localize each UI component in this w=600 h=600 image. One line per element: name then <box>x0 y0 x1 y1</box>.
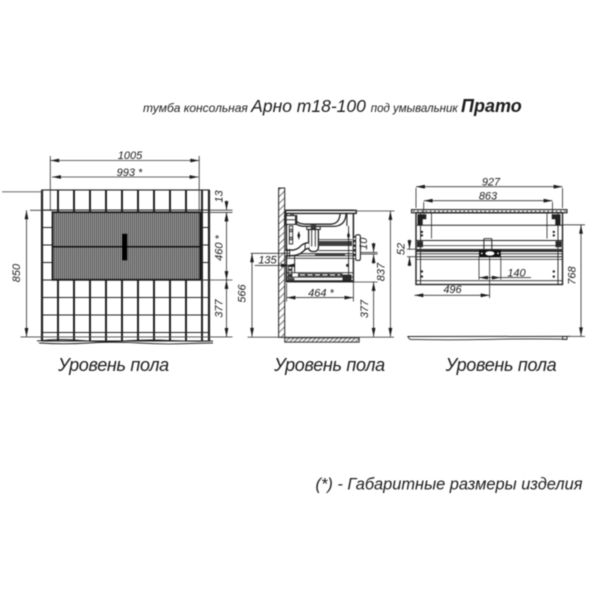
svg-text:464 *: 464 * <box>308 287 334 299</box>
svg-text:850: 850 <box>11 263 23 282</box>
svg-text:Уровень пола: Уровень пола <box>57 355 169 375</box>
svg-text:(*) - Габаритные размеры издел: (*) - Габаритные размеры изделия <box>315 476 582 494</box>
svg-text:460 *: 460 * <box>213 234 225 260</box>
svg-text:377: 377 <box>359 299 371 318</box>
svg-text:тумба консольная Арно т18-100: тумба консольная Арно т18-100 под умывал… <box>143 96 522 116</box>
svg-text:Уровень пола: Уровень пола <box>445 355 557 375</box>
svg-text:52: 52 <box>396 243 408 255</box>
svg-text:566: 566 <box>237 283 249 302</box>
svg-text:993 *: 993 * <box>117 167 143 179</box>
svg-text:1005: 1005 <box>118 150 143 162</box>
svg-text:140: 140 <box>507 267 526 279</box>
svg-text:496: 496 <box>443 284 462 296</box>
svg-text:377: 377 <box>213 298 225 317</box>
svg-text:927: 927 <box>482 176 501 188</box>
svg-text:768: 768 <box>566 265 578 284</box>
svg-text:863: 863 <box>479 191 498 203</box>
svg-text:135: 135 <box>258 254 277 266</box>
svg-text:10: 10 <box>358 237 370 250</box>
svg-text:Уровень пола: Уровень пола <box>273 355 385 375</box>
svg-text:13: 13 <box>213 190 225 203</box>
svg-text:837: 837 <box>375 262 387 281</box>
